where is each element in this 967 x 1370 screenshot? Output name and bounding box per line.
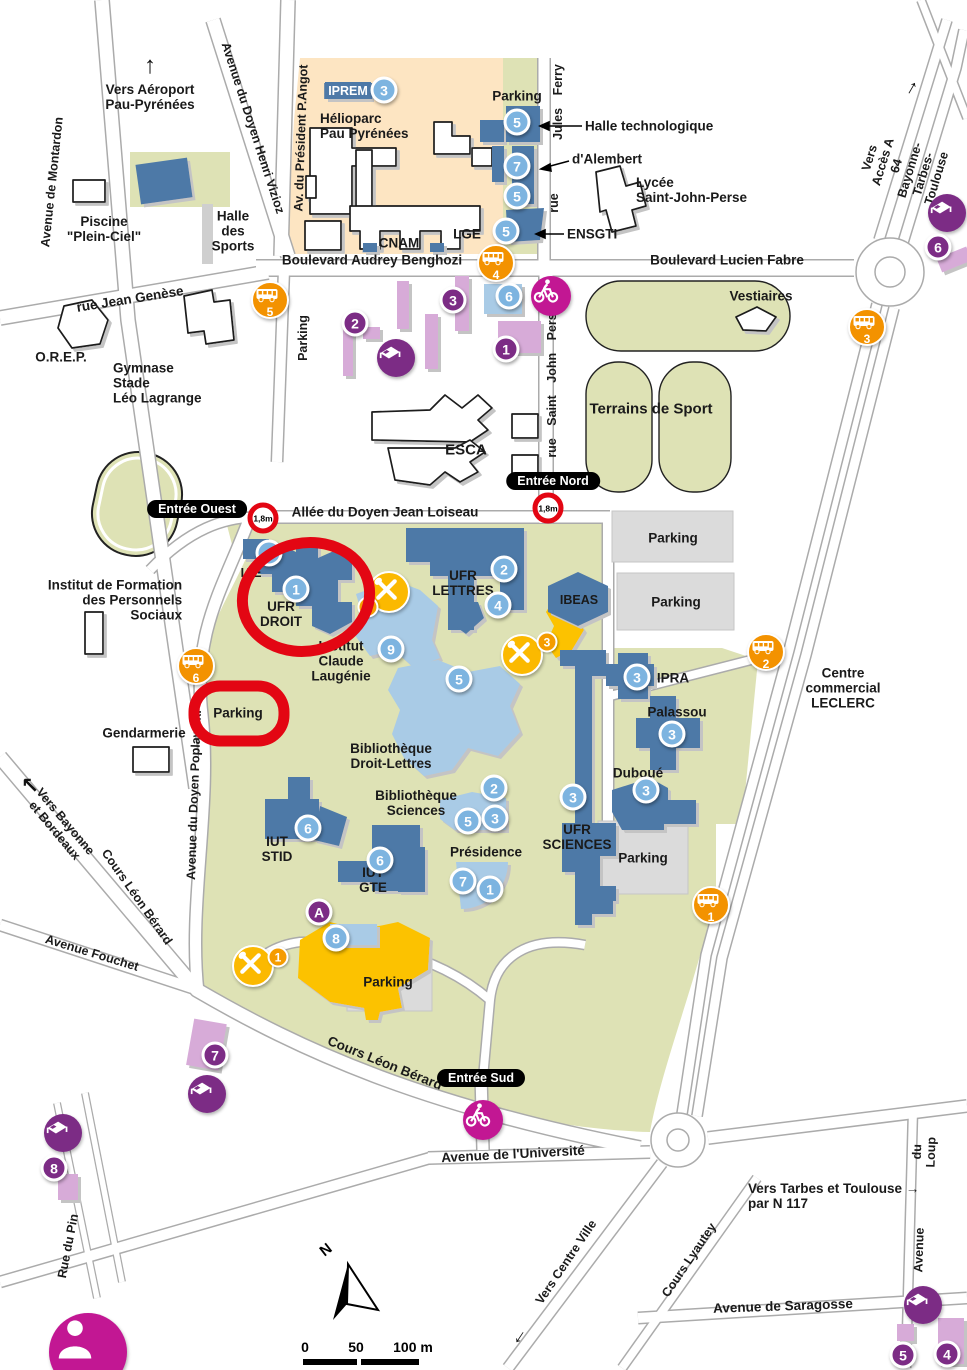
restaurant-badge-1: 1 [268, 947, 289, 968]
marker-lettres-2: 2 [491, 556, 518, 583]
scale-bar-1 [303, 1359, 357, 1365]
marker-presidence-1: 1 [477, 876, 504, 903]
label-bib-droit-lettres: Bibliothèque Droit-Lettres [350, 741, 432, 771]
label-iprem: IPREM [324, 83, 372, 99]
bus-icon [479, 246, 507, 270]
bus-line-number: 2 [749, 657, 783, 671]
height-limit-sign-ouest: 1,8m [248, 503, 279, 534]
bus-stop-2: 2 [747, 633, 785, 671]
gymnase-building [184, 290, 234, 344]
residence-bed-icon-est [928, 194, 966, 232]
marker-iut-stid: 6 [295, 815, 322, 842]
entrance-sud: Entrée Sud [437, 1069, 525, 1087]
height-limit-text: 1,8m [538, 503, 557, 513]
marker-halle-tech: 5 [504, 109, 531, 136]
bicycle-icon [463, 1100, 493, 1130]
street-label-vers-aeroport: Vers Aéroport Pau-Pyrénées [105, 82, 194, 112]
bus-line-number: 6 [179, 671, 213, 685]
bus-icon [179, 649, 207, 673]
bus-stop-3: 3 [848, 308, 886, 346]
bus-stop-1: 1 [692, 886, 730, 924]
scale-50: 50 [348, 1339, 364, 1355]
marker-a: A [306, 899, 333, 926]
label-parking-helioparc: Parking [492, 88, 542, 103]
restaurant-badge-3: 3 [537, 632, 558, 653]
street-label-loup-top: du Loup [909, 1130, 938, 1174]
label-esca: ESCA [445, 443, 487, 460]
marker-palassou: 3 [659, 721, 686, 748]
label-orep: O.R.E.P. [35, 349, 87, 364]
label-ufr-sciences: UFR SCIENCES [542, 822, 611, 852]
label-leclerc: Centre commercial LECLERC [805, 665, 880, 710]
street-label-fabre: Boulevard Lucien Fabre [650, 252, 804, 267]
entrance-ouest: Entrée Ouest [147, 500, 247, 518]
marker-ufr-sciences: 3 [560, 784, 587, 811]
cutlery-icon [503, 636, 536, 669]
street-label-jules-ferry: Jules Ferry [551, 64, 565, 140]
person-silhouette-icon [49, 1313, 101, 1365]
label-helioparc: Hélioparc Pau Pyrénées [320, 111, 409, 141]
label-ufr-lettres: UFR LETTRES [432, 568, 494, 598]
bus-icon [694, 888, 722, 912]
esca-building-1 [372, 395, 492, 442]
marker-ipra: 3 [624, 664, 651, 691]
gendarmerie-building [133, 747, 169, 772]
height-limit-text: 1,8m [253, 513, 272, 523]
street-label-loup-bottom: Avenue [911, 1227, 927, 1272]
marker-bibsci-2: 2 [481, 775, 508, 802]
street-label-jules-ferry-rue: rue [547, 193, 561, 212]
label-bib-sciences: Bibliothèque Sciences [375, 788, 457, 818]
bike-icon-nord [531, 276, 571, 316]
marker-ensgti: 5 [493, 218, 520, 245]
label-lycee: Lycée Saint-John-Perse [636, 175, 747, 205]
residence-marker-4: 4 [934, 1341, 961, 1368]
bicycle-icon [531, 276, 561, 306]
street-label-vers-tarbes: Vers Tarbes et Toulouse → par N 117 [748, 1181, 919, 1211]
marker-bib-dl: 5 [446, 666, 473, 693]
campus-map: Vers Aéroport Pau-Pyrénées ↑ Avenue de M… [0, 0, 967, 1370]
bus-stop-6: 6 [177, 647, 215, 685]
street-label-benghozi: Boulevard Audrey Benghozi [282, 252, 462, 267]
label-ensgti: ENSGTI [567, 226, 617, 241]
marker-lettres-4: 4 [485, 592, 512, 619]
scale-0: 0 [301, 1339, 309, 1355]
residence-marker-1: 1 [493, 336, 520, 363]
marker-iprem: 3 [371, 77, 398, 104]
bus-line-number: 4 [479, 268, 513, 282]
marker-laugenie: 9 [378, 636, 405, 663]
residence-marker-5: 5 [890, 1342, 917, 1369]
bed-icon [44, 1114, 70, 1140]
bus-stop-5: 5 [251, 281, 289, 319]
label-ibeas: IBEAS [560, 593, 598, 607]
residence-marker-3: 3 [440, 287, 467, 314]
bus-line-number: 3 [850, 332, 884, 346]
label-palassou: Palassou [647, 704, 706, 719]
compass-arrow [326, 1256, 386, 1336]
label-ipra: IPRA [657, 670, 689, 685]
bus-stop-4: 4 [477, 244, 515, 282]
bed-icon [188, 1075, 214, 1101]
bus-line-number: 5 [253, 305, 287, 319]
bus-line-number: 1 [694, 910, 728, 924]
label-iae: IAE [241, 566, 262, 580]
label-dalembert: d'Alembert [572, 151, 642, 166]
terrain-3 [659, 362, 731, 492]
street-label-sjperse: rue Saint John Perse [545, 306, 559, 457]
marker-top-6: 6 [496, 283, 523, 310]
label-terrains: Terrains de Sport [589, 402, 712, 419]
label-halle-sports: Halle des Sports [212, 208, 255, 253]
piscine-building [135, 158, 192, 205]
label-parking-sud: Parking [363, 974, 413, 989]
label-cnam: CNAM [379, 235, 420, 250]
marker-dalembert: 7 [504, 153, 531, 180]
aeroport-arrow: ↑ [144, 52, 156, 80]
residence-bed-icon-pin [44, 1114, 82, 1152]
label-lge: LGE [453, 226, 481, 241]
label-gendarmerie: Gendarmerie [102, 725, 185, 740]
entrance-nord: Entrée Nord [506, 472, 600, 490]
marker-bibsci-3: 3 [482, 805, 509, 832]
label-halle-technologique: Halle technologique [585, 118, 713, 133]
residence-marker-2: 2 [342, 310, 369, 337]
label-vestiaires: Vestiaires [729, 288, 792, 303]
marker-ufr-droit: 1 [283, 576, 310, 603]
residence-bed-icon-nord [377, 339, 415, 377]
scale-100: 100 m [393, 1339, 433, 1355]
label-parking-1: Parking [648, 530, 698, 545]
cutlery-icon [234, 947, 267, 980]
marker-8: 8 [323, 925, 350, 952]
residence-marker-8: 8 [41, 1155, 68, 1182]
marker-iae: 4 [256, 540, 283, 567]
bike-icon-sud [463, 1100, 503, 1140]
label-gymnase: Gymnase Stade Léo Lagrange [113, 360, 202, 405]
residence-marker-6: 6 [925, 234, 952, 261]
restaurant-badge-2: 2 [358, 597, 379, 618]
label-ufr-droit: UFR DROIT [260, 599, 302, 629]
residence-bed-icon-saragosse [904, 1286, 942, 1324]
residence-bed-icon-berard [188, 1075, 226, 1113]
residence-marker-7: 7 [202, 1042, 229, 1069]
bus-icon [850, 310, 878, 334]
label-presidence: Présidence [450, 844, 522, 859]
label-parking-2: Parking [651, 594, 701, 609]
label-iut-stid: IUT STID [262, 834, 293, 864]
marker-duboue: 3 [633, 777, 660, 804]
height-limit-sign-nord: 1,8m [533, 493, 564, 524]
label-parking-circled: Parking [213, 705, 263, 720]
marker-presidence-7: 7 [450, 868, 477, 895]
scale-bar-2 [361, 1359, 419, 1365]
bed-icon [904, 1286, 930, 1312]
street-label-loiseau: Allée du Doyen Jean Loiseau [292, 504, 479, 519]
bus-icon [253, 283, 281, 307]
bed-icon [928, 194, 954, 220]
marker-iut-gte: 6 [367, 847, 394, 874]
label-parking-ouest: Parking [296, 315, 310, 361]
label-ifps: Institut de Formation des Personnels Soc… [48, 577, 182, 622]
bus-icon [749, 635, 777, 659]
marker-helio-5: 5 [504, 183, 531, 210]
marker-bibsci-5: 5 [455, 808, 482, 835]
bed-icon [377, 339, 403, 365]
label-parking-sciences: Parking [618, 850, 668, 865]
label-laugenie: Institut Claude Laugénie [311, 638, 370, 683]
label-piscine: Piscine "Plein-Ciel" [67, 214, 141, 244]
bayonne-arrow: ↖ [21, 773, 39, 799]
